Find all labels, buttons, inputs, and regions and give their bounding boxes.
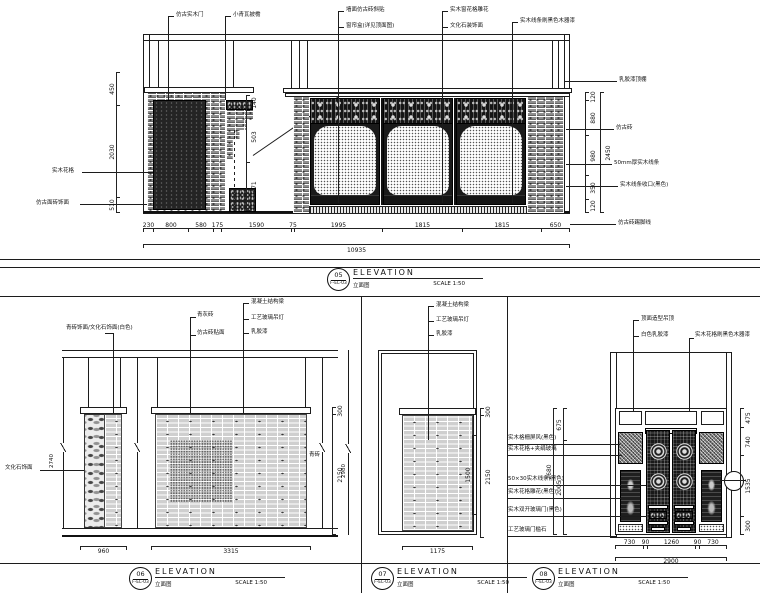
d08-side-lattice-right [699, 432, 724, 464]
d05-lattice-panel-3 [456, 98, 526, 205]
callout-culture-stone: 文化石饰面 [5, 466, 33, 472]
d07-right-dim: 300 2150 [480, 408, 484, 538]
d06-wall-edge [157, 357, 158, 407]
break-symbol [344, 444, 353, 453]
d08-side-carved-panel-left [620, 470, 641, 522]
d05-right-brick-wall [527, 97, 564, 213]
leader-line [338, 27, 344, 28]
d06-column-edge [88, 357, 89, 407]
callout-ceiling-feature: 顶面造型吊顶 [641, 317, 674, 323]
d08-transom-left [619, 411, 642, 425]
sheet-divider-line [0, 296, 760, 297]
callout-lattice-silk-glass: 实木花格+夹绢玻璃 [508, 447, 557, 453]
leader-line [428, 335, 434, 336]
callout-latex-paint: 乳胶漆 [436, 332, 453, 338]
leader-line [225, 16, 226, 100]
d06-floor-line [62, 528, 338, 529]
callout-wood-lattice: 实木窗花格雕花 [450, 8, 489, 14]
door-rail [648, 521, 668, 525]
d06-wall-edge [305, 357, 306, 407]
d06-wall-cap [151, 407, 311, 414]
fabric-screen-window [314, 126, 376, 195]
d08-door-leaf-left [646, 430, 670, 533]
elevation-title: ELEVATION [353, 268, 483, 279]
scale-note: SCALE 1:50 [638, 580, 670, 588]
d05-stud-line [552, 40, 553, 88]
drawing-number-bubble: 07 F-EL-03 [371, 567, 394, 590]
callout-white-latex: 白色乳胶漆 [641, 333, 669, 339]
leader-line [508, 516, 647, 517]
drawing-number: 08 [536, 571, 550, 580]
sheet-ref: F-EL-03 [535, 580, 552, 586]
callout-latex-ceiling: 乳胶漆顶棚 [619, 78, 647, 84]
d05-bottom-dim-total: 10935 [143, 244, 570, 248]
d08-side-base-right [699, 524, 724, 532]
d06-column-width-dim: 960 [80, 546, 127, 550]
callout-antique-door: 仿古实木门 [176, 13, 204, 19]
carved-rosette [650, 443, 667, 460]
titleblock-08: 08 F-EL-03 ELEVATION 立面图 SCALE 1:50 [532, 567, 688, 590]
d05-plinth-hatch [309, 206, 527, 214]
d08-right-dims: 475 740 1535 300 [740, 408, 744, 535]
leader-line [512, 22, 518, 23]
callout-carved-lattice: 实木花格雕花(黑色) [508, 490, 556, 496]
scale-note: SCALE 1:50 [433, 281, 465, 289]
break-symbol [133, 443, 142, 452]
panel-base-rail [457, 195, 525, 204]
drawing-number: 07 [375, 571, 389, 580]
callout-brick-skirting: 仿古砖踢脚线 [618, 221, 651, 227]
door-rail [648, 505, 668, 509]
d05-right-dim-total: 2450 [600, 92, 604, 213]
d05-stud-line [299, 40, 300, 88]
elevation-title-cn: 立面图 [155, 580, 172, 588]
leader-line [243, 303, 244, 414]
d07-bottom-dim: 1175 [402, 546, 473, 550]
callout-antique-tile: 仿古面砖饰面 [36, 201, 69, 207]
d08-transom-right [701, 411, 724, 425]
sheet-divider-line [0, 259, 760, 260]
leader-line [633, 320, 639, 321]
leader-line [565, 81, 617, 82]
d06-brick-medallion [170, 440, 232, 502]
leader-line [633, 336, 639, 337]
callout-grille-screen: 实木格栅屏风(黑色) [508, 436, 556, 442]
titleblock-05: 05 F-EL-03 ELEVATION 立面图 SCALE 1:50 [327, 268, 483, 291]
leader-line [689, 338, 690, 411]
d06-column-brick-side [104, 414, 122, 528]
break-symbol [318, 443, 327, 452]
leader-line [566, 164, 612, 165]
callout-tile-eave: 小青瓦披檐 [233, 13, 261, 19]
callout-wood-grille: 实木花格 [52, 169, 74, 175]
leader-line [113, 333, 114, 414]
elevation-title-cn: 立面图 [558, 580, 575, 588]
sheet-ref: F-EL-03 [330, 281, 347, 287]
leader-line [512, 22, 513, 203]
leader-line [442, 11, 448, 12]
leader-line [508, 536, 616, 537]
drawing-sheet: 仿古实木门 小青瓦披檐 墙面仿古砖斜贴 窗帘盒(详见顶面图) 实木窗花格雕花 文… [0, 0, 760, 593]
elevation-title: ELEVATION [397, 567, 527, 578]
panel-base-rail [311, 195, 379, 204]
drawing-number-bubble: 05 F-EL-03 [327, 268, 350, 291]
titleblock-07: 07 F-EL-03 ELEVATION 立面图 SCALE 1:50 [371, 567, 527, 590]
callout-latex-paint: 乳胶漆 [251, 330, 268, 336]
leader-line [168, 16, 169, 100]
door-rail [674, 521, 694, 525]
callout-art-glass-lamp: 工艺玻璃吊灯 [436, 318, 469, 324]
d05-right-dim: 120 880 980 350 120 [585, 92, 589, 213]
d07-total-height: 2980 [342, 464, 348, 478]
d08-transom-center [645, 411, 697, 425]
d08-side-carved-panel-right [701, 470, 722, 522]
d06-break-line [137, 357, 138, 444]
leader-line [428, 306, 434, 307]
d05-stud-line [233, 40, 234, 87]
elevation-title-cn: 立面图 [353, 281, 370, 289]
d06-floor-line [62, 535, 338, 537]
d06-right-dim: 300 2150 [332, 407, 336, 535]
callout-black-lattice: 实木花格刷黑色木器漆 [695, 333, 750, 339]
d06-ceiling-line [62, 357, 338, 358]
d06-column-edge [120, 357, 121, 407]
d06-break-line [63, 452, 64, 528]
panel-divider-line [361, 296, 362, 593]
carved-lattice-band [457, 99, 525, 124]
leader-line [566, 129, 614, 130]
d05-stud-line [558, 40, 559, 88]
callout-curtain-box: 窗帘盒(详见顶面图) [346, 24, 394, 30]
drawing-number: 06 [133, 571, 147, 580]
leader-line [338, 11, 339, 203]
leader-line [225, 16, 231, 17]
callout-stone-white: 青砖饰面/文化石饰面(白色) [66, 326, 133, 332]
leader-line [168, 16, 174, 17]
d05-lattice-panel-1 [310, 98, 380, 205]
d08-left-dim-total: 2680 [553, 408, 557, 535]
callout-concrete-beam: 混凝土结构梁 [251, 300, 284, 306]
d06-break-line [137, 452, 138, 528]
leader-line [442, 27, 448, 28]
door-carved-panel [675, 511, 693, 519]
leader-line [689, 338, 694, 339]
leader-line [40, 470, 84, 471]
drawing-number-bubble: 06 F-EL-03 [129, 567, 152, 590]
callout-antique-brick-face: 仿古砖贴面 [197, 331, 225, 337]
d08-bottom-dims: 730 90 1260 90 730 [615, 545, 727, 549]
leader-line [428, 306, 429, 440]
leader-line [508, 485, 646, 486]
d05-hidden-line [234, 128, 235, 211]
leader-line [190, 317, 191, 414]
d05-stud-line [158, 40, 159, 87]
d07-grey-brick-wall [402, 415, 473, 531]
d07-wall-cap [399, 408, 476, 415]
d05-right-inner-line [564, 34, 565, 214]
d07-left-dim-line [348, 350, 349, 445]
d06-culture-stone-column [84, 414, 105, 528]
scale-note: SCALE 1:50 [235, 580, 267, 588]
fabric-screen-window [387, 126, 449, 195]
d05-mid-dim: 140 503 471 [246, 95, 250, 211]
callout-concrete-beam: 混凝土结构梁 [436, 303, 469, 309]
door-carved-panel [649, 511, 667, 519]
drawing-number-bubble: 08 F-EL-03 [532, 567, 555, 590]
callout-grey-brick: 青灰砖 [197, 313, 214, 319]
carved-rosette [676, 443, 693, 460]
d08-left-dims: 675 2005 [563, 408, 567, 535]
callout-brick-diagonal: 墙面仿古砖斜贴 [346, 8, 385, 14]
d05-left-dim: 450 2030 510 [116, 72, 120, 213]
d08-side-lattice-left [618, 432, 643, 464]
callout-culture-stone: 文化石装饰面 [450, 24, 483, 30]
elevation-title-cn: 立面图 [397, 580, 414, 588]
callout-wood-strip: 50mm厚实木线条 [614, 161, 659, 167]
elevation-title: ELEVATION [558, 567, 688, 578]
d06-column-cap [80, 407, 127, 414]
d06-total-height: 2740 [50, 454, 56, 468]
d05-stud-line [307, 40, 308, 88]
drawing-number: 05 [331, 272, 345, 281]
door-kick-panel [651, 527, 665, 531]
d06-break-line [322, 357, 323, 444]
d08-door-leaf-right [672, 430, 696, 533]
leader-line [633, 320, 634, 411]
callout-grey-brick-small: 青砖 [309, 453, 320, 459]
d08-side-base-left [618, 524, 643, 532]
sheet-ref: F-EL-03 [374, 580, 391, 586]
callout-antique-brick: 仿古砖 [616, 126, 633, 132]
d05-antique-wood-door [153, 100, 206, 210]
d06-wall-width-dim: 3315 [151, 546, 311, 550]
leader-line [442, 11, 443, 203]
scale-note: SCALE 1:50 [477, 580, 509, 588]
carved-lattice-band [311, 99, 379, 124]
d06-break-line [63, 357, 64, 444]
callout-wood-edge: 实木线条收口(黑色) [620, 183, 668, 189]
callout-art-glass-lamp: 工艺玻璃吊灯 [251, 316, 284, 322]
d06-ceiling-line [62, 350, 338, 351]
d08-bottom-dim-total: 2900 [615, 557, 727, 561]
sheet-ref: F-EL-03 [132, 580, 149, 586]
carved-rosette [676, 473, 693, 490]
callout-black-wood-trim: 实木线条刷黑色木器漆 [520, 19, 575, 25]
door-kick-panel [677, 527, 691, 531]
carved-rosette [650, 473, 667, 490]
d05-mid-brick-pier [293, 97, 309, 213]
door-rail [674, 505, 694, 509]
d07-inner-dim: 1500 [472, 435, 476, 515]
sheet-divider-line [0, 563, 760, 564]
leader-line [428, 321, 434, 322]
break-symbol [59, 443, 68, 452]
d06-break-line [322, 452, 323, 528]
elevation-title: ELEVATION [155, 567, 285, 578]
callout-threshold-stone: 工艺玻璃门槛石 [508, 528, 547, 534]
d05-ceiling-inner-line [143, 40, 570, 41]
titleblock-06: 06 F-EL-03 ELEVATION 立面图 SCALE 1:50 [129, 567, 285, 590]
leader-line [570, 224, 616, 225]
leader-line [338, 11, 344, 12]
d05-stud-line [291, 40, 292, 88]
d07-left-dim-line [348, 453, 349, 535]
d05-bottom-dims: 230 800 580 175 1590 75 1995 1815 1815 6… [143, 228, 570, 232]
